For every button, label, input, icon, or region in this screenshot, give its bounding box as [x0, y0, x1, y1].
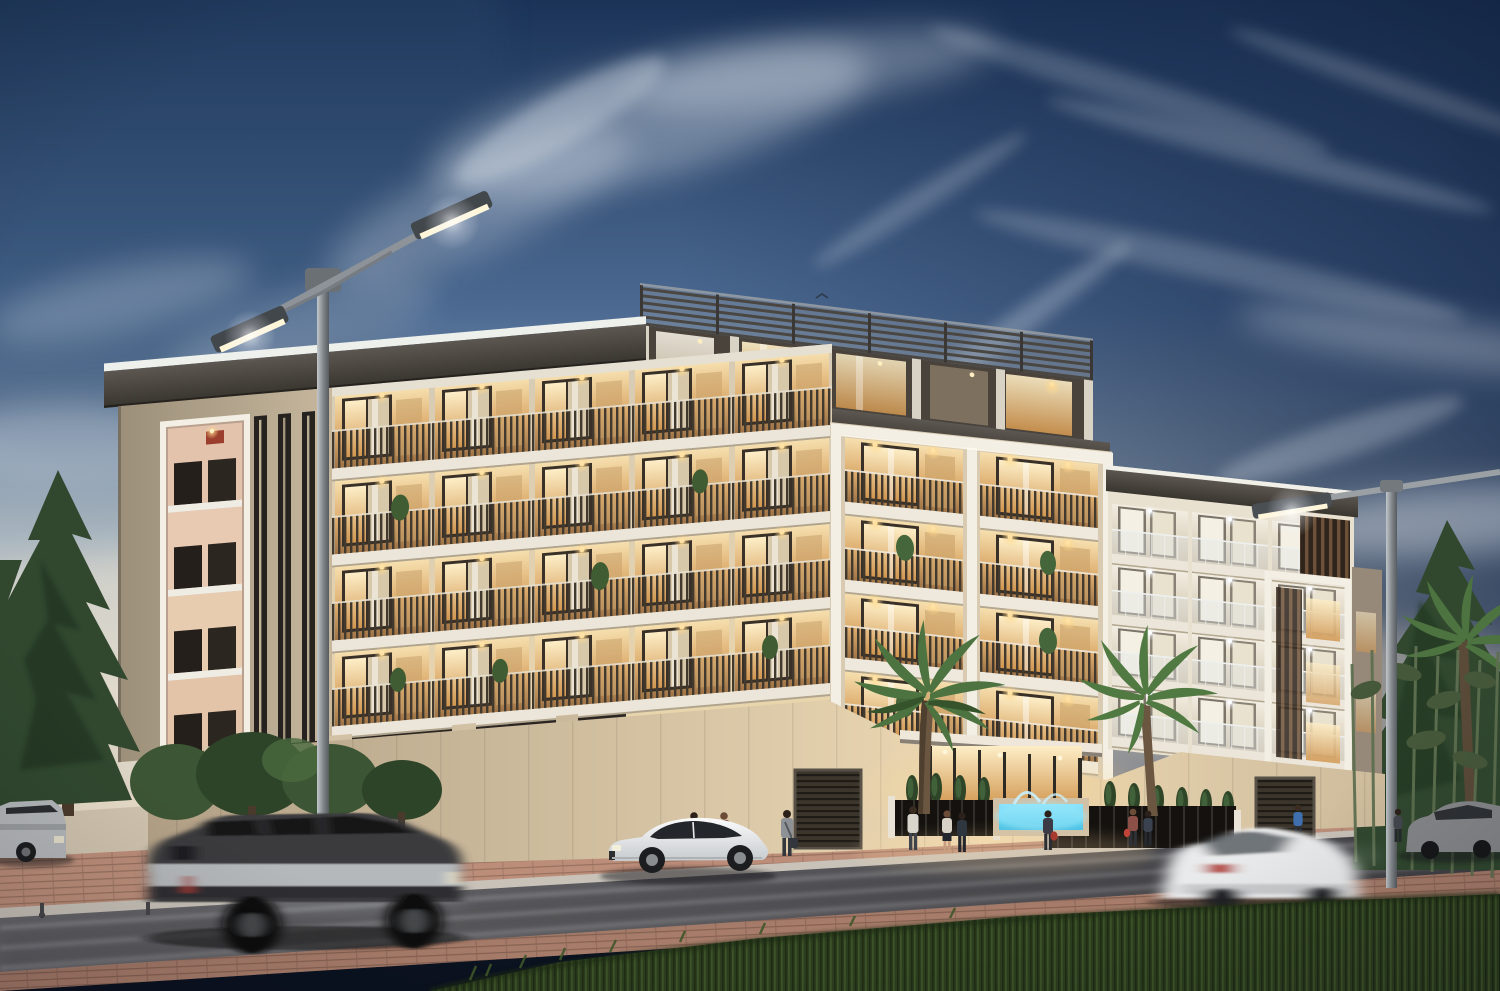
scene-architectural-rendering [0, 0, 1500, 991]
vignette-overlay [0, 0, 1500, 991]
rendering-canvas [0, 0, 1500, 991]
